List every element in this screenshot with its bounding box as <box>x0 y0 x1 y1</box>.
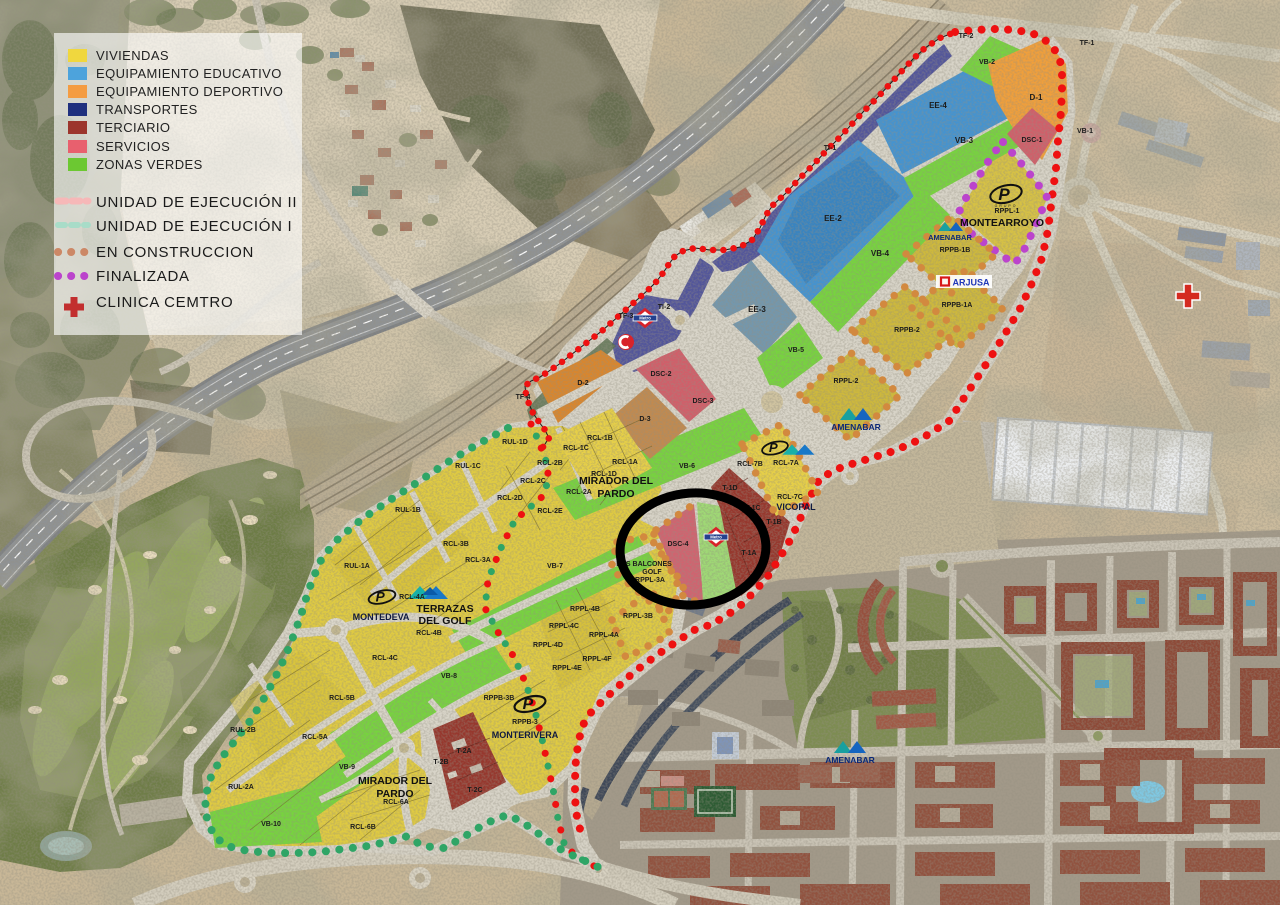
svg-text:RCL-7C: RCL-7C <box>777 494 803 501</box>
svg-text:D-3: D-3 <box>639 416 650 423</box>
svg-text:RCL-3A: RCL-3A <box>465 557 491 564</box>
svg-text:RCL-6A: RCL-6A <box>383 799 409 806</box>
svg-text:EE-2: EE-2 <box>824 214 842 223</box>
svg-text:VB-7: VB-7 <box>547 563 563 570</box>
svg-text:RPPB-2: RPPB-2 <box>894 327 920 334</box>
svg-text:P: P <box>376 589 386 604</box>
svg-text:SERVICIOS: SERVICIOS <box>96 139 170 154</box>
svg-text:RPPL-4A: RPPL-4A <box>589 632 619 639</box>
svg-text:AMENABAR: AMENABAR <box>831 422 881 432</box>
svg-text:RPPL-4D: RPPL-4D <box>533 642 563 649</box>
svg-text:RUL-1B: RUL-1B <box>395 507 421 514</box>
svg-text:UNIDAD DE EJECUCIÓN II: UNIDAD DE EJECUCIÓN II <box>96 194 297 211</box>
svg-text:RCL-2A: RCL-2A <box>566 489 592 496</box>
svg-text:RPPB-1A: RPPB-1A <box>942 302 973 309</box>
svg-text:VB-10: VB-10 <box>261 821 281 828</box>
svg-text:RCL-4B: RCL-4B <box>416 630 442 637</box>
svg-text:RPPL-4E: RPPL-4E <box>552 665 582 672</box>
svg-text:T-2B: T-2B <box>433 759 448 766</box>
svg-text:RPPL-2: RPPL-2 <box>834 378 859 385</box>
svg-text:VICOPAL: VICOPAL <box>776 502 816 512</box>
svg-text:GOLF: GOLF <box>642 569 662 576</box>
svg-text:PARDO: PARDO <box>376 788 413 800</box>
svg-text:DSC-4: DSC-4 <box>667 541 688 548</box>
svg-text:CLINICA CEMTRO: CLINICA CEMTRO <box>96 294 233 311</box>
svg-text:RCL-2B: RCL-2B <box>537 460 563 467</box>
svg-text:RCL-2C: RCL-2C <box>520 478 546 485</box>
svg-text:RUL-2A: RUL-2A <box>228 784 254 791</box>
svg-text:MONTEARROYO: MONTEARROYO <box>960 217 1044 229</box>
svg-text:TERCIARIO: TERCIARIO <box>96 120 170 135</box>
svg-text:P: P <box>769 440 778 455</box>
svg-text:T-1A: T-1A <box>741 550 756 557</box>
svg-text:RPPB-3: RPPB-3 <box>512 719 538 726</box>
svg-text:TERRAZAS: TERRAZAS <box>416 603 473 615</box>
svg-text:RCL-4C: RCL-4C <box>372 655 398 662</box>
svg-text:RCL-3B: RCL-3B <box>443 541 469 548</box>
svg-text:RUL-1D: RUL-1D <box>502 439 528 446</box>
svg-text:VB-8: VB-8 <box>441 673 457 680</box>
svg-text:RCL-7B: RCL-7B <box>737 461 763 468</box>
svg-text:D-2: D-2 <box>577 380 588 387</box>
svg-text:VB-2: VB-2 <box>979 59 995 66</box>
svg-text:RCL-1B: RCL-1B <box>587 435 613 442</box>
svg-text:TI-2: TI-2 <box>658 304 671 311</box>
svg-text:VB-4: VB-4 <box>871 249 890 258</box>
svg-text:RCL-5B: RCL-5B <box>329 695 355 702</box>
svg-text:TI-1: TI-1 <box>824 145 837 152</box>
svg-text:D-1: D-1 <box>1030 93 1043 102</box>
svg-text:UNIDAD DE EJECUCIÓN I: UNIDAD DE EJECUCIÓN I <box>96 218 292 235</box>
svg-text:DSC-2: DSC-2 <box>650 371 671 378</box>
svg-text:VB-9: VB-9 <box>339 764 355 771</box>
svg-text:DEL GOLF: DEL GOLF <box>419 615 472 627</box>
svg-text:RCL-5A: RCL-5A <box>302 734 328 741</box>
svg-text:MIRADOR DEL: MIRADOR DEL <box>579 475 654 487</box>
svg-text:RUL-2B: RUL-2B <box>230 727 256 734</box>
svg-text:ZONAS VERDES: ZONAS VERDES <box>96 157 203 172</box>
svg-text:RPPL-1: RPPL-1 <box>995 208 1020 215</box>
svg-text:VIVIENDAS: VIVIENDAS <box>96 48 169 63</box>
svg-text:RUL-1C: RUL-1C <box>455 463 481 470</box>
svg-text:MONTERIVERA: MONTERIVERA <box>492 730 559 740</box>
svg-text:RCL-4A: RCL-4A <box>399 594 425 601</box>
svg-text:RPPL-4C: RPPL-4C <box>549 623 579 630</box>
svg-text:DSC-3: DSC-3 <box>692 398 713 405</box>
svg-text:TF-3: TF-3 <box>619 313 634 320</box>
svg-text:T-1B: T-1B <box>766 519 781 526</box>
svg-text:P: P <box>523 696 534 713</box>
svg-text:P: P <box>998 185 1010 204</box>
svg-text:T-2C: T-2C <box>467 787 482 794</box>
svg-text:Metro: Metro <box>710 535 722 540</box>
svg-text:PARDO: PARDO <box>597 488 634 500</box>
svg-text:EE-4: EE-4 <box>929 101 947 110</box>
svg-text:RPPL-4F: RPPL-4F <box>582 656 612 663</box>
svg-text:T-1D: T-1D <box>722 485 737 492</box>
svg-text:Metro: Metro <box>639 316 651 321</box>
svg-text:VB-3: VB-3 <box>955 136 974 145</box>
svg-text:AMENABAR: AMENABAR <box>825 755 875 765</box>
svg-text:RUL-1A: RUL-1A <box>344 563 370 570</box>
svg-text:MIRADOR DEL: MIRADOR DEL <box>358 775 433 787</box>
svg-text:RCL-1A: RCL-1A <box>612 459 638 466</box>
svg-text:VB-5: VB-5 <box>788 347 804 354</box>
svg-text:FINALIZADA: FINALIZADA <box>96 268 190 285</box>
svg-text:RPPB-3B: RPPB-3B <box>484 695 515 702</box>
svg-text:RCL-2D: RCL-2D <box>497 495 523 502</box>
svg-text:RCL-1C: RCL-1C <box>563 445 589 452</box>
svg-text:T-2A: T-2A <box>456 748 471 755</box>
svg-text:VB-6: VB-6 <box>679 463 695 470</box>
svg-text:DSC-1: DSC-1 <box>1021 137 1042 144</box>
svg-text:RPPL-3B: RPPL-3B <box>623 613 653 620</box>
svg-text:EQUIPAMIENTO EDUCATIVO: EQUIPAMIENTO EDUCATIVO <box>96 66 282 81</box>
svg-text:TF-2: TF-2 <box>959 33 974 40</box>
svg-text:ARJUSA: ARJUSA <box>952 278 990 288</box>
svg-text:RCL-7A: RCL-7A <box>773 460 799 467</box>
svg-text:MONTEDEVA: MONTEDEVA <box>353 612 410 622</box>
svg-text:RCL-2E: RCL-2E <box>537 508 563 515</box>
svg-text:AMENABAR: AMENABAR <box>928 233 972 242</box>
svg-text:RPPL-4B: RPPL-4B <box>570 606 600 613</box>
svg-text:TF-1: TF-1 <box>1080 40 1095 47</box>
svg-text:RPPB-1B: RPPB-1B <box>940 247 971 254</box>
svg-text:EQUIPAMIENTO DEPORTIVO: EQUIPAMIENTO DEPORTIVO <box>96 84 283 99</box>
svg-text:EE-3: EE-3 <box>748 305 766 314</box>
svg-text:VB-1: VB-1 <box>1077 128 1093 135</box>
svg-text:RCL-6B: RCL-6B <box>350 824 376 831</box>
svg-text:TRANSPORTES: TRANSPORTES <box>96 102 198 117</box>
svg-text:TF-4: TF-4 <box>516 394 531 401</box>
svg-text:EN CONSTRUCCION: EN CONSTRUCCION <box>96 244 254 261</box>
